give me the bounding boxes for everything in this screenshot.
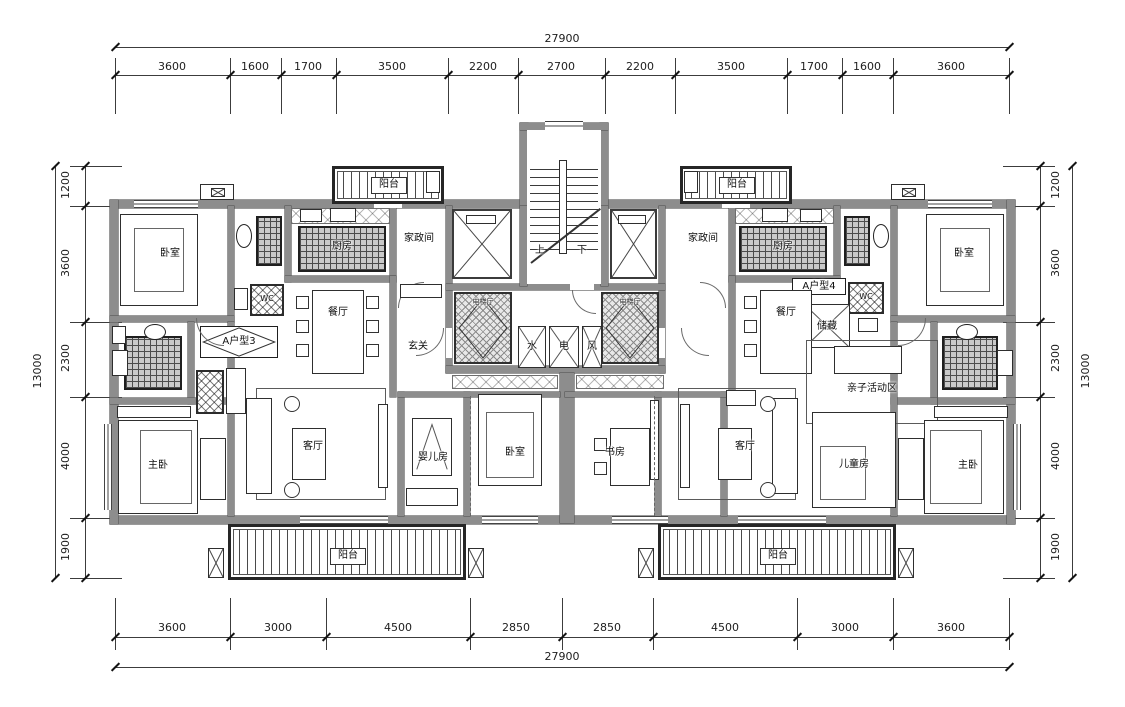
dim-left-total: 13000 bbox=[32, 341, 44, 401]
side-table bbox=[760, 482, 776, 498]
room-label-elevator-hall: 电梯厅 bbox=[460, 298, 506, 307]
bath-sink bbox=[112, 350, 128, 376]
window bbox=[300, 516, 388, 524]
dim-right-total-line bbox=[1072, 166, 1073, 578]
dim-right-2: 2300 bbox=[1050, 328, 1062, 388]
room-label-living: 客厅 bbox=[298, 440, 328, 453]
vent-box bbox=[891, 184, 925, 200]
dim-bottom-2: 4500 bbox=[370, 622, 426, 634]
dim-witness bbox=[797, 598, 798, 650]
bath-sink bbox=[997, 350, 1013, 376]
sofa bbox=[772, 398, 798, 494]
wall-partition bbox=[285, 276, 396, 282]
dim-witness bbox=[70, 578, 122, 579]
dim-bottom-total: 27900 bbox=[534, 651, 590, 663]
wardrobe bbox=[200, 438, 226, 500]
dining-chair bbox=[296, 344, 309, 357]
bay-window bbox=[104, 424, 112, 510]
toilet bbox=[236, 224, 252, 248]
dim-top-10: 3600 bbox=[923, 61, 979, 73]
wc-sink bbox=[234, 288, 248, 310]
dining-chair bbox=[296, 296, 309, 309]
room-label-balcony: 阳台 bbox=[371, 177, 407, 194]
room-label-housekeeping: 家政间 bbox=[680, 232, 726, 245]
dim-witness bbox=[518, 58, 519, 114]
wall-stair-right bbox=[601, 206, 608, 286]
side-table bbox=[284, 482, 300, 498]
dim-top-5: 2700 bbox=[533, 61, 589, 73]
room-label-master: 主卧 bbox=[952, 459, 984, 472]
kitchen-hob bbox=[762, 208, 788, 222]
room-label-wc: WC bbox=[855, 292, 877, 302]
dining-chair bbox=[744, 344, 757, 357]
kitchen-sink bbox=[800, 209, 822, 222]
dim-top-total: 27900 bbox=[534, 33, 590, 45]
dim-tick bbox=[1005, 42, 1014, 51]
dresser-strip bbox=[934, 406, 1008, 418]
dim-top-3: 3500 bbox=[364, 61, 420, 73]
dim-top-7: 3500 bbox=[703, 61, 759, 73]
dim-witness bbox=[448, 58, 449, 114]
entry-door-swing bbox=[681, 328, 709, 356]
dim-left-3: 4000 bbox=[60, 426, 72, 486]
dim-witness bbox=[230, 598, 231, 650]
dim-tick bbox=[1005, 662, 1014, 671]
wall-stair-left bbox=[520, 206, 527, 286]
dim-tick bbox=[51, 573, 60, 582]
bed-mattress bbox=[820, 446, 866, 500]
dim-bottom-0: 3600 bbox=[144, 622, 200, 634]
room-label-storage: 储藏 bbox=[812, 320, 842, 333]
dining-table bbox=[760, 290, 812, 374]
dim-witness bbox=[605, 58, 606, 114]
bath-shelf bbox=[112, 326, 126, 344]
bath-tiles bbox=[124, 336, 182, 390]
room-label-elevator-hall: 电梯厅 bbox=[607, 298, 653, 307]
dim-bottom-3: 2850 bbox=[488, 622, 544, 634]
elevator-left-door bbox=[466, 215, 496, 224]
window bbox=[134, 200, 198, 208]
bath-tiles bbox=[256, 216, 282, 266]
dresser bbox=[406, 488, 458, 506]
room-label-kids: 儿童房 bbox=[831, 458, 877, 471]
dresser-strip bbox=[117, 406, 191, 418]
hatch-cabinet bbox=[196, 370, 224, 414]
vent-x-icon bbox=[211, 188, 225, 197]
entry-door-swing bbox=[416, 328, 444, 356]
door-opening bbox=[446, 328, 452, 358]
dim-right-3: 4000 bbox=[1050, 426, 1062, 486]
wardrobe bbox=[898, 438, 924, 500]
dim-left-2: 2300 bbox=[60, 328, 72, 388]
bath-tiles bbox=[942, 336, 998, 390]
coffee-table bbox=[292, 428, 326, 480]
room-label-bedroom: 卧室 bbox=[944, 247, 984, 260]
tall-cabinet bbox=[226, 368, 246, 414]
shaft-water-label: 水 bbox=[524, 340, 540, 353]
room-label-bedroom: 卧室 bbox=[150, 247, 190, 260]
wall-core-mid bbox=[446, 284, 665, 290]
room-label-dining: 餐厅 bbox=[771, 306, 801, 319]
room-label-activity: 亲子活动区 bbox=[830, 382, 914, 395]
balcony-drain bbox=[684, 171, 698, 193]
dim-witness bbox=[1009, 58, 1010, 114]
room-label-kitchen: 厨房 bbox=[765, 240, 801, 253]
dim-right-1: 3600 bbox=[1050, 233, 1062, 293]
dim-bottom-7: 3600 bbox=[923, 622, 979, 634]
wall-partition bbox=[891, 206, 897, 322]
dim-bottom-4: 2850 bbox=[579, 622, 635, 634]
activity-sofa bbox=[834, 346, 902, 374]
vent-x-icon bbox=[902, 188, 916, 197]
dining-chair bbox=[296, 320, 309, 333]
floor-plan-canvas: 27900 3600 1600 1700 3500 2200 2700 2200… bbox=[0, 0, 1125, 707]
wall-partition bbox=[398, 392, 404, 516]
dim-bottom-5: 4500 bbox=[697, 622, 753, 634]
dim-top-9: 1600 bbox=[839, 61, 895, 73]
foyer-cabinet bbox=[400, 284, 442, 298]
wardrobe-slide bbox=[654, 396, 655, 516]
stair-up-label: 上 bbox=[532, 244, 548, 257]
dim-bottom-1: 3000 bbox=[250, 622, 306, 634]
room-label-balcony: 阳台 bbox=[760, 548, 796, 565]
coffee-table bbox=[718, 428, 752, 480]
wardrobe-slide bbox=[470, 396, 471, 516]
room-label-study: 书房 bbox=[600, 446, 630, 459]
room-label-bedroom: 卧室 bbox=[500, 446, 530, 459]
bay-window bbox=[1013, 424, 1021, 510]
bed-mattress bbox=[486, 412, 534, 478]
dim-witness bbox=[70, 166, 122, 167]
side-table bbox=[760, 396, 776, 412]
dim-top-0: 3600 bbox=[144, 61, 200, 73]
sofa bbox=[246, 398, 272, 494]
dim-witness bbox=[115, 598, 116, 650]
dim-left-0: 1200 bbox=[60, 155, 72, 215]
wc-sink bbox=[858, 318, 878, 332]
wall-stair-tower-right bbox=[600, 123, 608, 208]
dining-table bbox=[312, 290, 364, 374]
bed-mattress bbox=[940, 228, 990, 292]
window bbox=[482, 516, 538, 524]
wall-partition bbox=[729, 276, 735, 397]
bed-mattress bbox=[134, 228, 184, 292]
armchair bbox=[726, 390, 756, 406]
dim-witness bbox=[893, 598, 894, 650]
dining-chair bbox=[366, 344, 379, 357]
toilet bbox=[144, 324, 166, 340]
vent-box bbox=[200, 184, 234, 200]
wall-partition bbox=[834, 206, 840, 282]
dim-top-4: 2200 bbox=[455, 61, 511, 73]
dim-right-total: 13000 bbox=[1080, 341, 1092, 401]
crib bbox=[412, 418, 452, 476]
desk-chair bbox=[594, 462, 607, 475]
dim-top-2: 1700 bbox=[280, 61, 336, 73]
dim-bottom-6: 3000 bbox=[817, 622, 873, 634]
dim-top-total-line bbox=[115, 47, 1009, 48]
dim-witness bbox=[653, 598, 654, 650]
dim-left-total-line bbox=[55, 166, 56, 578]
room-label-kitchen: 厨房 bbox=[324, 240, 360, 253]
dim-witness bbox=[115, 58, 116, 114]
window bbox=[738, 516, 826, 524]
room-label-balcony: 阳台 bbox=[330, 548, 366, 565]
shaft-electric-label: 电 bbox=[556, 340, 572, 353]
dim-top-seg-line bbox=[115, 75, 1009, 76]
dining-chair bbox=[744, 320, 757, 333]
dim-top-1: 1600 bbox=[227, 61, 283, 73]
stair-down-label: 下 bbox=[574, 244, 590, 257]
dim-top-6: 2200 bbox=[612, 61, 668, 73]
elevator-right-door bbox=[618, 215, 646, 224]
window bbox=[928, 200, 992, 208]
dining-chair bbox=[744, 296, 757, 309]
dining-chair bbox=[366, 320, 379, 333]
window bbox=[612, 516, 668, 524]
bath-tiles bbox=[844, 216, 870, 266]
dim-witness bbox=[1003, 166, 1055, 167]
room-label-housekeeping: 家政间 bbox=[396, 232, 442, 245]
dim-bottom-total-line bbox=[115, 667, 1009, 668]
toilet bbox=[956, 324, 978, 340]
dim-right-0: 1200 bbox=[1050, 155, 1062, 215]
balcony-drain bbox=[426, 171, 440, 193]
door-opening bbox=[659, 328, 665, 358]
door-swing bbox=[700, 282, 726, 308]
dim-witness bbox=[562, 598, 563, 650]
wall-partition bbox=[390, 276, 396, 397]
room-label-dining: 餐厅 bbox=[323, 306, 353, 319]
toilet bbox=[873, 224, 889, 248]
drain-box bbox=[468, 548, 484, 578]
drain-box bbox=[208, 548, 224, 578]
drain-box bbox=[898, 548, 914, 578]
dim-witness bbox=[326, 598, 327, 650]
dim-witness bbox=[675, 58, 676, 114]
room-label-balcony: 阳台 bbox=[719, 177, 755, 194]
shaft-vent-label: 风 bbox=[584, 340, 600, 353]
closet-band bbox=[576, 375, 664, 389]
dim-tick bbox=[1068, 573, 1077, 582]
side-table bbox=[284, 396, 300, 412]
dim-left-4: 1900 bbox=[60, 517, 72, 577]
tv-cabinet bbox=[378, 404, 388, 488]
dim-witness bbox=[1003, 578, 1055, 579]
dim-witness bbox=[470, 598, 471, 650]
stair-door-swing bbox=[572, 290, 596, 314]
room-label-wc: WC bbox=[256, 294, 278, 304]
room-label-baby: 婴儿房 bbox=[410, 451, 456, 464]
dim-witness bbox=[336, 58, 337, 114]
dim-top-8: 1700 bbox=[786, 61, 842, 73]
kitchen-sink bbox=[300, 209, 322, 222]
room-label-master: 主卧 bbox=[142, 459, 174, 472]
dim-witness bbox=[1009, 598, 1010, 650]
dim-right-4: 1900 bbox=[1050, 517, 1062, 577]
room-label-living: 客厅 bbox=[730, 440, 760, 453]
kitchen-hob bbox=[330, 208, 356, 222]
dining-chair bbox=[366, 296, 379, 309]
wall-partition bbox=[188, 322, 194, 404]
drain-box bbox=[638, 548, 654, 578]
dim-left-1: 3600 bbox=[60, 233, 72, 293]
tv-cabinet bbox=[680, 404, 690, 488]
closet-band bbox=[452, 375, 558, 389]
